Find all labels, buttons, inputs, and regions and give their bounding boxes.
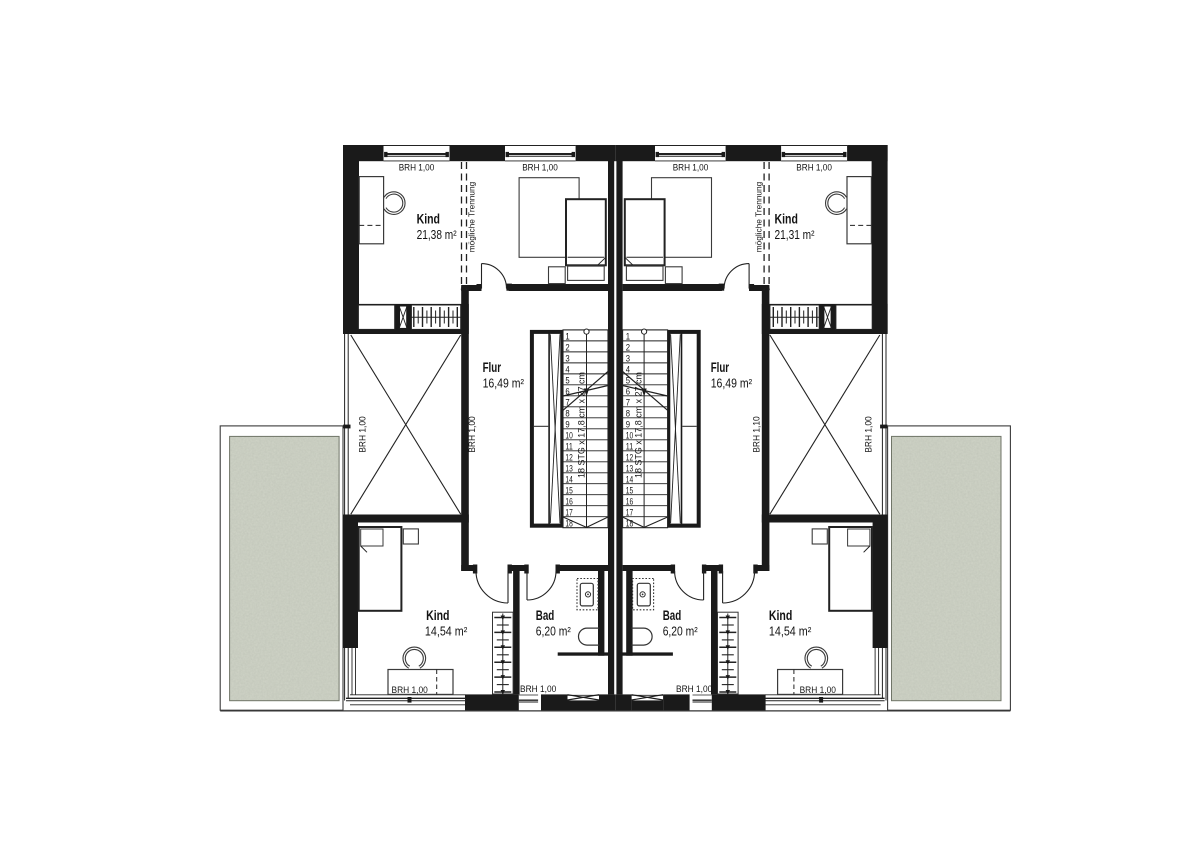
- svg-text:8: 8: [626, 408, 630, 419]
- svg-text:6: 6: [626, 386, 630, 397]
- svg-text:BRH 1,00: BRH 1,00: [522, 163, 558, 173]
- svg-text:Kind: Kind: [417, 211, 440, 226]
- svg-text:BRH 1,00: BRH 1,00: [392, 685, 428, 695]
- svg-text:17: 17: [626, 507, 633, 518]
- svg-text:BRH 1,00: BRH 1,00: [399, 163, 435, 173]
- svg-text:1: 1: [626, 331, 630, 342]
- svg-text:12: 12: [565, 452, 572, 463]
- svg-text:1: 1: [565, 331, 569, 342]
- svg-text:10: 10: [565, 430, 572, 441]
- svg-text:BRH 1,00: BRH 1,00: [796, 163, 832, 173]
- svg-text:BRH 1,00: BRH 1,00: [467, 416, 477, 452]
- svg-text:16,49 m²: 16,49 m²: [483, 376, 524, 390]
- svg-text:4: 4: [626, 364, 630, 375]
- svg-text:11: 11: [626, 441, 633, 452]
- svg-text:Kind: Kind: [769, 608, 792, 623]
- svg-text:16: 16: [565, 496, 572, 507]
- svg-text:5: 5: [626, 375, 630, 386]
- svg-text:16,49 m²: 16,49 m²: [711, 376, 752, 390]
- svg-text:17: 17: [565, 507, 572, 518]
- svg-text:6: 6: [565, 386, 569, 397]
- svg-text:BRH 1,00: BRH 1,00: [800, 685, 836, 695]
- svg-text:9: 9: [565, 419, 569, 430]
- svg-text:5: 5: [565, 375, 569, 386]
- svg-text:3: 3: [565, 353, 569, 364]
- svg-text:3: 3: [626, 353, 630, 364]
- svg-text:15: 15: [626, 485, 633, 496]
- svg-text:11: 11: [565, 441, 572, 452]
- svg-text:13: 13: [565, 463, 572, 474]
- svg-text:BRH 1,00: BRH 1,00: [676, 684, 712, 694]
- svg-text:4: 4: [565, 364, 569, 375]
- svg-text:6,20 m²: 6,20 m²: [536, 625, 571, 639]
- svg-text:2: 2: [626, 342, 630, 353]
- svg-text:BRH 1,10: BRH 1,10: [752, 416, 762, 452]
- svg-text:Flur: Flur: [483, 360, 502, 375]
- svg-text:Flur: Flur: [711, 360, 730, 375]
- svg-text:14,54 m²: 14,54 m²: [425, 625, 467, 639]
- svg-text:Bad: Bad: [536, 608, 555, 623]
- svg-text:6,20 m²: 6,20 m²: [663, 625, 698, 639]
- svg-text:10: 10: [626, 430, 633, 441]
- svg-text:7: 7: [626, 397, 630, 408]
- svg-text:15: 15: [565, 485, 572, 496]
- svg-text:BRH 1,00: BRH 1,00: [358, 416, 368, 452]
- svg-text:16: 16: [626, 496, 633, 507]
- svg-text:7: 7: [565, 397, 569, 408]
- svg-text:Bad: Bad: [663, 608, 682, 623]
- svg-text:BRH 1,00: BRH 1,00: [863, 416, 873, 452]
- svg-text:18 STG x 17,8 cm x 27 cm: 18 STG x 17,8 cm x 27 cm: [633, 372, 643, 478]
- svg-text:mögliche Trennung: mögliche Trennung: [467, 181, 477, 252]
- svg-text:18: 18: [626, 518, 633, 529]
- svg-text:14: 14: [626, 474, 633, 485]
- svg-text:BRH 1,00: BRH 1,00: [520, 684, 556, 694]
- svg-text:8: 8: [565, 408, 569, 419]
- svg-text:BRH 1,00: BRH 1,00: [673, 163, 709, 173]
- svg-text:12: 12: [626, 452, 633, 463]
- svg-text:18: 18: [565, 518, 572, 529]
- svg-text:14: 14: [565, 474, 572, 485]
- svg-text:13: 13: [626, 463, 633, 474]
- svg-text:9: 9: [626, 419, 630, 430]
- svg-text:18 STG x 17,8 cm x 27 cm: 18 STG x 17,8 cm x 27 cm: [576, 372, 586, 478]
- svg-text:2: 2: [565, 342, 569, 353]
- svg-text:14,54 m²: 14,54 m²: [769, 625, 811, 639]
- svg-text:Kind: Kind: [426, 608, 449, 623]
- svg-text:21,31 m²: 21,31 m²: [775, 228, 815, 242]
- svg-text:Kind: Kind: [775, 211, 798, 226]
- svg-text:mögliche Trennung: mögliche Trennung: [753, 181, 763, 252]
- svg-text:21,38 m²: 21,38 m²: [417, 228, 457, 242]
